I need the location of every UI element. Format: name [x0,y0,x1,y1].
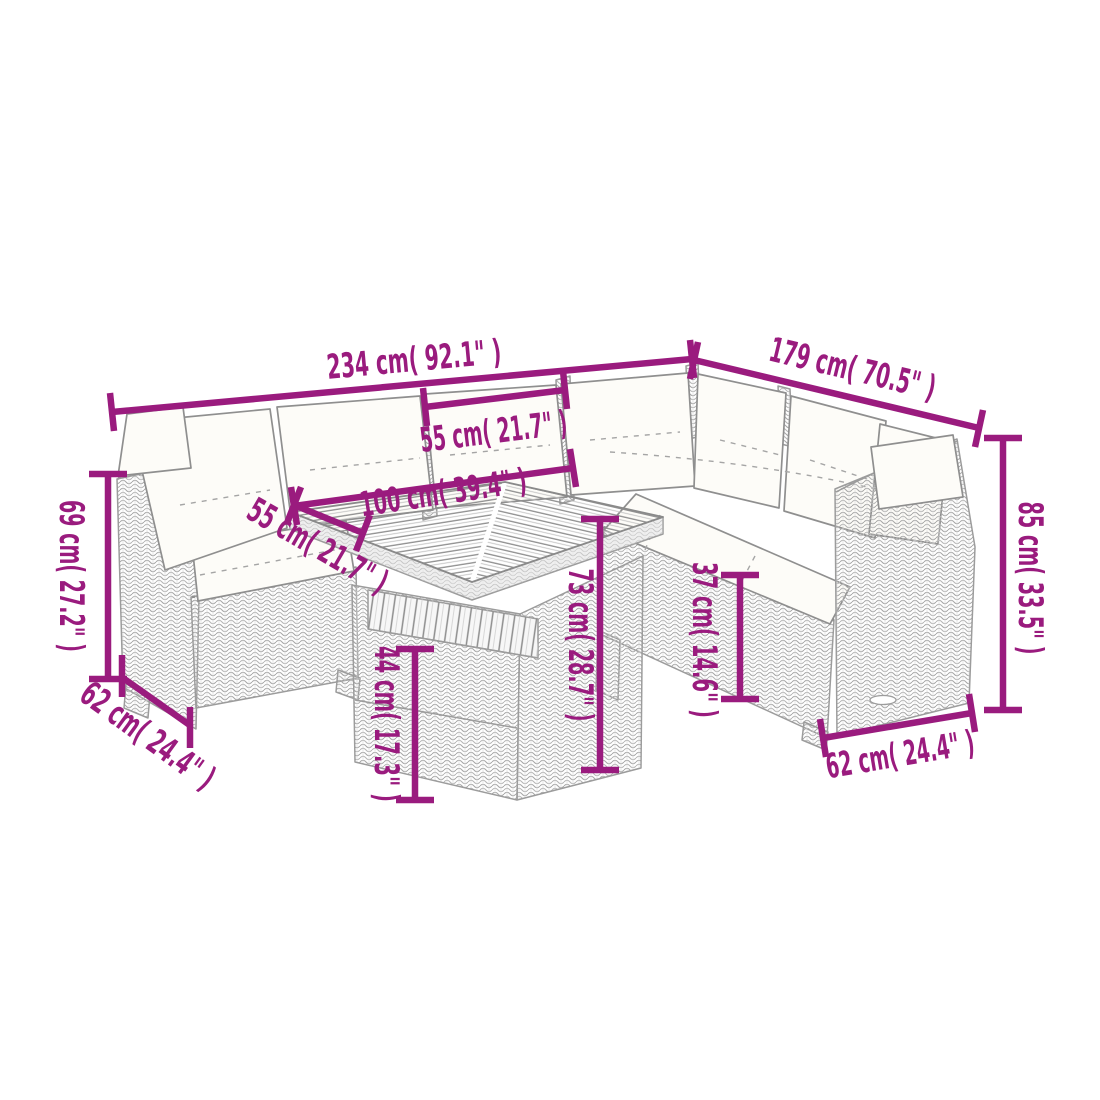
dim-tick [110,393,114,431]
dim-label-sofa-base-height: 37 cm( 14.6" ) [684,562,724,718]
dim-label-armrest-height: 69 cm( 27.2" ) [51,500,91,652]
dim-tick [975,410,983,447]
dim-label-back-height: 85 cm( 33.5" ) [1010,502,1050,655]
dim-armrest-height: 69 cm( 27.2" ) [51,474,127,679]
right-armrest-pillow [871,435,963,509]
dimension-diagram-page: 234 cm( 92.1" ) 179 cm( 70.5" ) 55 cm( 2… [0,0,1100,1100]
furniture-dimension-diagram: 234 cm( 92.1" ) 179 cm( 70.5" ) 55 cm( 2… [0,0,1100,1100]
left-armrest-pillow [118,407,191,476]
back-pillow [561,373,695,495]
dim-label-table-shelf-height: 44 cm( 17.3" ) [366,646,406,802]
sofa-foot-cap [870,696,896,705]
dim-back-height: 85 cm( 33.5" ) [984,438,1050,710]
back-pillow [694,374,786,508]
dim-label-table-height: 73 cm( 28.7" ) [560,569,600,722]
